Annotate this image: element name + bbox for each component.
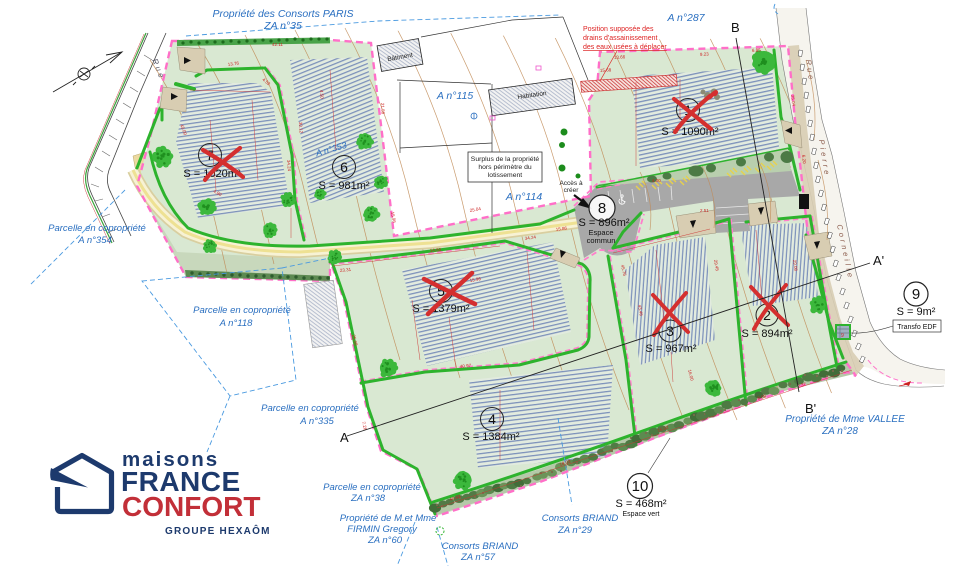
svg-text:30.12: 30.12	[298, 122, 304, 134]
svg-text:Parcelle en copropriété: Parcelle en copropriété	[48, 223, 146, 234]
svg-text:Consorts BRIAND: Consorts BRIAND	[442, 541, 519, 552]
svg-text:hors périmètre du: hors périmètre du	[478, 164, 531, 171]
svg-text:8: 8	[598, 200, 606, 217]
svg-text:Surplus de la propriété: Surplus de la propriété	[471, 156, 540, 163]
svg-text:lotissement: lotissement	[488, 172, 522, 179]
svg-text:ZA n°38: ZA n°38	[350, 493, 386, 504]
svg-text:A': A'	[873, 253, 884, 268]
svg-text:2.51: 2.51	[700, 208, 709, 213]
svg-text:ZA n°60: ZA n°60	[367, 535, 403, 546]
svg-text:Espace vert: Espace vert	[623, 511, 660, 518]
svg-text:A: A	[340, 430, 349, 445]
svg-text:Propriété des Consorts PARIS: Propriété des Consorts PARIS	[212, 8, 353, 20]
svg-text:A n°354: A n°354	[77, 235, 112, 246]
svg-text:A n°114: A n°114	[505, 191, 542, 203]
svg-text:Accès à: Accès à	[559, 180, 583, 187]
svg-text:Consorts BRIAND: Consorts BRIAND	[542, 513, 619, 524]
svg-text:S = 9m²: S = 9m²	[897, 306, 936, 318]
svg-text:ZA n°35: ZA n°35	[263, 20, 302, 32]
svg-text:S = 894m²: S = 894m²	[741, 328, 792, 340]
svg-text:4.50: 4.50	[319, 90, 325, 100]
svg-text:B: B	[731, 20, 740, 35]
svg-text:Position supposée des: Position supposée des	[583, 26, 654, 33]
svg-text:B': B'	[805, 401, 816, 416]
svg-text:FIRMIN Gregory: FIRMIN Gregory	[347, 524, 418, 535]
svg-text:9.23: 9.23	[700, 52, 710, 57]
svg-text:9: 9	[841, 333, 844, 339]
svg-text:4: 4	[488, 411, 496, 427]
svg-text:Parcelle en copropriété: Parcelle en copropriété	[193, 305, 291, 316]
svg-text:A n°287: A n°287	[666, 12, 705, 24]
svg-text:Transfo EDF: Transfo EDF	[897, 324, 936, 331]
svg-text:ZA n°57: ZA n°57	[460, 552, 496, 563]
svg-text:13.66: 13.66	[614, 54, 626, 60]
svg-text:Propriété de M.et Mme: Propriété de M.et Mme	[340, 513, 437, 524]
svg-text:9: 9	[912, 286, 920, 303]
svg-text:GROUPE HEXAÔM: GROUPE HEXAÔM	[165, 524, 271, 537]
svg-text:S = 981m²: S = 981m²	[318, 180, 369, 192]
svg-text:21.58: 21.58	[380, 103, 386, 115]
svg-text:Parcelle en copropriété: Parcelle en copropriété	[323, 482, 421, 493]
svg-text:ZA n°28: ZA n°28	[821, 426, 858, 437]
svg-text:10: 10	[632, 478, 649, 495]
svg-text:Propriété de Mme VALLEE: Propriété de Mme VALLEE	[785, 414, 905, 425]
svg-text:6.85: 6.85	[752, 48, 762, 53]
svg-text:S = 1379m²: S = 1379m²	[412, 303, 470, 315]
svg-text:14.80: 14.80	[430, 247, 442, 253]
svg-text:A n°115: A n°115	[436, 90, 473, 102]
svg-text:ZA n°29: ZA n°29	[557, 525, 593, 536]
svg-text:A n°118: A n°118	[219, 318, 254, 329]
svg-text:3: 3	[666, 323, 674, 339]
svg-text:commun: commun	[587, 236, 616, 245]
svg-text:42.11: 42.11	[272, 42, 283, 47]
svg-text:des eaux usées à déplacer: des eaux usées à déplacer	[583, 44, 667, 51]
svg-text:drains d'assainissement: drains d'assainissement	[583, 35, 658, 42]
svg-text:34.24: 34.24	[286, 160, 292, 172]
svg-text:créer: créer	[564, 187, 580, 194]
svg-text:4.00: 4.00	[652, 178, 661, 183]
svg-text:S = 468m²: S = 468m²	[615, 498, 666, 510]
svg-text:A n°335: A n°335	[299, 416, 334, 427]
svg-text:Parcelle en copropriété: Parcelle en copropriété	[261, 403, 359, 414]
svg-text:6: 6	[340, 159, 348, 175]
svg-text:CONFORT: CONFORT	[122, 491, 260, 522]
svg-text:S = 1384m²: S = 1384m²	[462, 431, 520, 443]
